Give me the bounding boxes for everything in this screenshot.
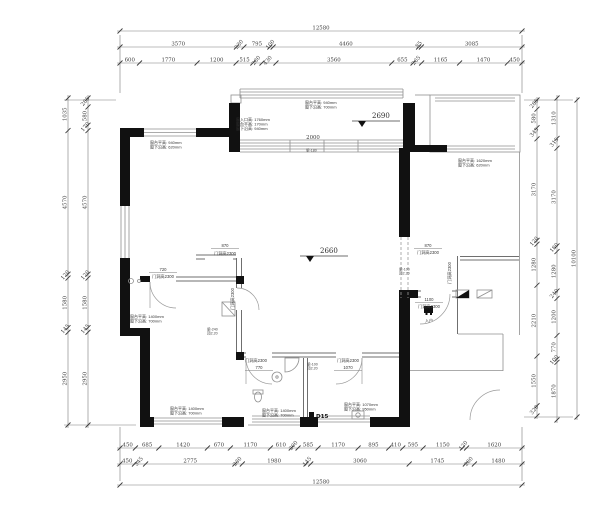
dim-label: 120 [458, 440, 470, 452]
dim-label: 1470 [477, 58, 491, 64]
dim-label: 4570 [83, 195, 89, 209]
door-height-label: 门洞高2300 [214, 250, 237, 257]
dim-label: 1170 [243, 443, 257, 449]
dim-label: 200 [288, 440, 300, 452]
level-value-balcony: 2690 [372, 112, 390, 120]
dim-label: 3570 [171, 42, 185, 48]
dim-label: 3170 [552, 190, 558, 204]
dim-label: 410 [391, 443, 402, 449]
door-height-label-vertical: 门洞高2300 [446, 261, 453, 284]
dim-label: 1480 [491, 459, 505, 465]
door-height-label: 门洞高2300 [337, 357, 360, 364]
dim-label: 655 [397, 58, 408, 64]
dim-label: 145 [80, 323, 92, 335]
beam-note: 顶2.20 [399, 271, 410, 276]
dim-label: 285 [529, 98, 541, 110]
door-width-dim: 870 [222, 243, 230, 248]
window-annotation: 窗下沿高: 700mm [170, 410, 202, 416]
dim-label: 120 [60, 269, 72, 281]
dim-label: 450 [122, 459, 133, 465]
door-swing-entry-rear [470, 390, 500, 420]
door-height-label: 门洞高2300 [418, 303, 441, 310]
floor-plan-page: 2690 2660 2000 入户 D15 门洞高2300 门洞高2300 12… [0, 0, 600, 509]
door-swing-bedroom [150, 282, 176, 308]
door-height-label: 门洞高2300 [245, 357, 268, 364]
level-value-living: 2660 [320, 247, 338, 255]
door-height-label: 门洞高2300 [417, 249, 440, 256]
door-width-dim: 870 [425, 243, 433, 248]
dim-label: 3085 [465, 42, 479, 48]
dim-label: 580 [532, 113, 538, 124]
dim-label: 3060 [353, 459, 367, 465]
door-width-dim: 1100 [424, 297, 434, 302]
window-annotation: 窗下沿高: 620mm [458, 162, 490, 168]
dim-label: 1580 [83, 295, 89, 309]
dim-label: 1770 [161, 58, 175, 64]
dim-label: 120 [529, 235, 541, 247]
dim-label: 1745 [430, 459, 444, 465]
dim-label: 1035 [63, 107, 69, 121]
dim-label: 1170 [331, 443, 345, 449]
dim-label: 1165 [434, 58, 448, 64]
beam-note: 梁-180 [306, 148, 317, 153]
dim-label: 595 [408, 443, 419, 449]
toilet-icon [255, 392, 262, 402]
dim-label: 1200 [552, 310, 558, 324]
window-code-label: D15 [316, 414, 329, 420]
window-annotation: 窗下沿高: 700mm [262, 412, 294, 418]
sink-marker-icon [309, 412, 314, 417]
dim-label: 1280 [532, 257, 538, 271]
door-swing-corridor [237, 288, 259, 310]
window-annotation: 窗下沿高: 700mm [130, 318, 162, 324]
dim-label: 1870 [552, 384, 558, 398]
dim-label: 230 [234, 39, 246, 51]
dim-label: 230 [232, 456, 244, 468]
door-width-dim: 770 [256, 365, 264, 370]
balcony-slider-dim: 2000 [306, 135, 320, 141]
dim-label: 3560 [327, 58, 341, 64]
dim-label: 2775 [183, 459, 197, 465]
dim-label: 145 [302, 456, 314, 468]
dim-label: 2210 [532, 313, 538, 327]
dim-label: 4460 [339, 42, 353, 48]
dim-label: 2950 [63, 371, 69, 385]
dim-label: 285 [80, 96, 92, 108]
dim-label: 1620 [487, 443, 501, 449]
dim-label: 1980 [267, 459, 281, 465]
dim-label: 1280 [552, 264, 558, 278]
dim-label: 12580 [312, 26, 330, 32]
floor-plan-drawing: 2690 2660 2000 入户 D15 门洞高2300 门洞高2300 12… [0, 0, 600, 509]
dim-label: 4570 [63, 195, 69, 209]
dim-label: 1310 [552, 111, 558, 125]
window-annotation: 窗下沿高: 940mm [236, 125, 268, 131]
dim-label: 3170 [532, 182, 538, 196]
dim-label: 10100 [572, 249, 578, 267]
dim-label: 1150 [436, 443, 450, 449]
shower-drain-icon [272, 372, 282, 382]
level-marker-icon [306, 256, 314, 262]
dim-label: 895 [368, 443, 379, 449]
dim-label: 600 [125, 58, 136, 64]
dim-label: 685 [142, 443, 153, 449]
dim-label: 610 [276, 443, 287, 449]
dim-label: 85 [415, 40, 424, 50]
dim-label: 265 [411, 55, 423, 67]
dim-label: 670 [214, 443, 225, 449]
dim-label: 450 [510, 58, 521, 64]
dim-label: 430 [263, 55, 275, 67]
dim-label: 795 [252, 42, 263, 48]
dim-label: 1580 [63, 295, 69, 309]
dim-label: 145 [60, 323, 72, 335]
fixtures [129, 279, 493, 420]
dim-label: 1550 [532, 373, 538, 387]
door-width-dim: 720 [160, 267, 168, 272]
dim-label: 2950 [83, 371, 89, 385]
dim-label: 515 [239, 58, 250, 64]
dim-label: 280 [463, 456, 475, 468]
dim-label: 450 [123, 443, 134, 449]
dim-label: 12580 [312, 480, 330, 486]
dim-label: 1420 [176, 443, 190, 449]
dim-label: 280 [251, 55, 263, 67]
plan-labels: 2000 入户 D15 门洞高2300 门洞高2300 [229, 135, 453, 420]
dim-label: 120 [80, 269, 92, 281]
dim-label: 1200 [210, 58, 224, 64]
door-height-label-vertical: 门洞高2300 [229, 287, 236, 310]
beam-note: 顶2.20 [307, 366, 318, 371]
door-height-label: 门洞高2300 [152, 273, 175, 280]
dim-label: 580 [83, 110, 89, 121]
entry-label: 入户 [425, 317, 433, 323]
window-annotation: 窗下沿高: 700mm [305, 104, 337, 110]
dim-label: 770 [552, 342, 558, 353]
window-annotation: 窗下沿高: 620mm [150, 144, 182, 150]
door-width-dim: 1070 [343, 365, 353, 370]
beam-note: 顶2.20 [207, 331, 218, 336]
dim-label: 585 [303, 443, 314, 449]
level-marker-icon [358, 121, 366, 127]
stove-icon [352, 411, 364, 419]
shower-enclosure-icon [285, 358, 299, 372]
window-annotation: 窗下沿高: 950mm [344, 406, 376, 412]
